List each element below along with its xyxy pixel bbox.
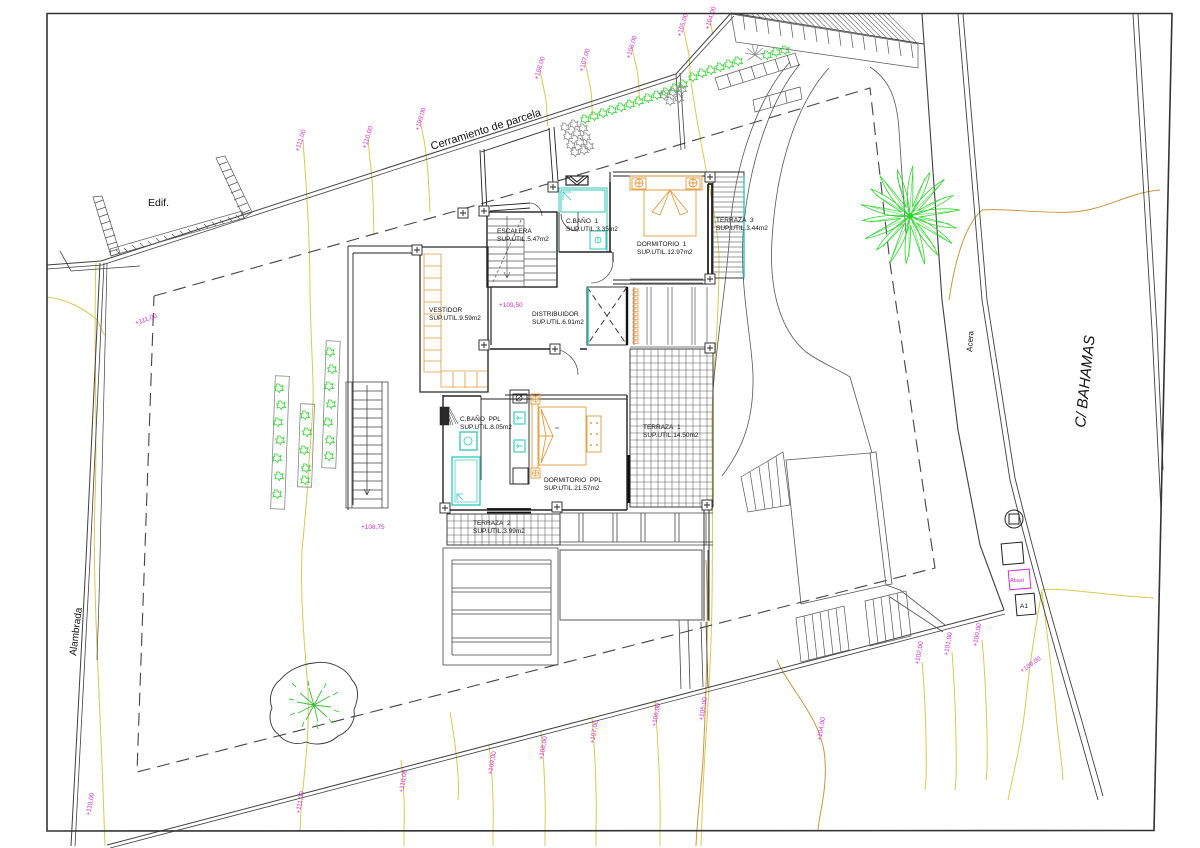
- svg-text:+108,75: +108,75: [361, 524, 385, 531]
- svg-text:SUP.UTIL.14.50m2: SUP.UTIL.14.50m2: [643, 432, 699, 439]
- svg-text:SUP.UTIL.8.05m2: SUP.UTIL.8.05m2: [460, 424, 512, 431]
- svg-text:SUP.UTIL.3.35m2: SUP.UTIL.3.35m2: [566, 226, 618, 233]
- svg-text:A1: A1: [1020, 603, 1028, 610]
- svg-text:TERRAZA 2: TERRAZA 2: [473, 520, 511, 527]
- svg-text:SUP.UTIL.3.44m2: SUP.UTIL.3.44m2: [716, 225, 768, 232]
- svg-text:SUP.UTIL.6.91m2: SUP.UTIL.6.91m2: [532, 319, 584, 326]
- svg-text:SUP.UTIL.21.57m2: SUP.UTIL.21.57m2: [544, 485, 600, 492]
- svg-text:Abast: Abast: [1010, 578, 1025, 584]
- svg-text:DORMITORIO 1: DORMITORIO 1: [637, 241, 687, 248]
- svg-text:Acera: Acera: [965, 330, 975, 352]
- svg-text:DORMITORIO PPL: DORMITORIO PPL: [544, 477, 602, 484]
- svg-text:ESCALERA: ESCALERA: [497, 228, 532, 235]
- svg-text:SUP.UTIL.9.59m2: SUP.UTIL.9.59m2: [429, 315, 481, 322]
- svg-text:+109,50: +109,50: [499, 302, 523, 309]
- svg-text:SUP.UTIL.12.97m2: SUP.UTIL.12.97m2: [637, 249, 693, 256]
- svg-text:Edif.: Edif.: [148, 197, 169, 209]
- svg-text:SUP.UTIL.5.47m2: SUP.UTIL.5.47m2: [497, 236, 549, 243]
- svg-text:C.BAÑO 1: C.BAÑO 1: [566, 216, 599, 225]
- svg-text:C.BAÑO PPL: C.BAÑO PPL: [460, 414, 501, 423]
- svg-text:VESTIDOR: VESTIDOR: [429, 307, 463, 314]
- svg-text:TERRAZA 3: TERRAZA 3: [716, 217, 754, 224]
- svg-text:TERRAZA 1: TERRAZA 1: [643, 424, 681, 431]
- svg-text:SUP.UTIL.3.99m2: SUP.UTIL.3.99m2: [473, 528, 525, 535]
- svg-text:DISTRIBUIDOR: DISTRIBUIDOR: [532, 311, 579, 318]
